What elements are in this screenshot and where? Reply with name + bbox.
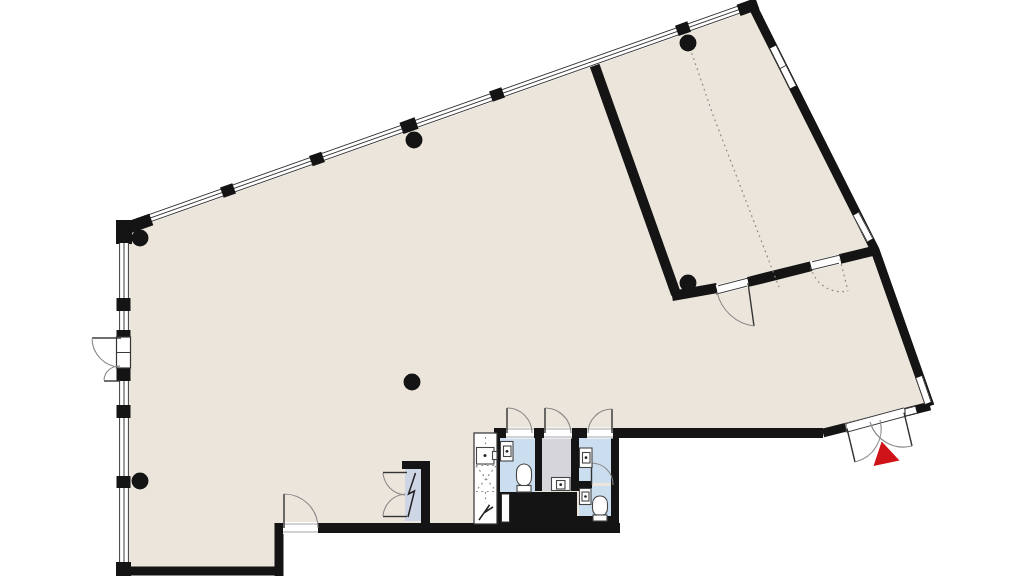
washbasin-symbol	[580, 448, 593, 468]
column	[404, 374, 421, 391]
wall-stall-divider-3	[577, 481, 592, 488]
window-mullion	[117, 368, 131, 381]
window-mullion	[117, 405, 131, 418]
shaft-room	[474, 433, 497, 524]
column	[680, 275, 697, 292]
column	[680, 35, 697, 52]
wall-stall-divider-1	[535, 430, 542, 491]
corner-block-sw	[116, 562, 131, 576]
toilet-symbol	[593, 496, 608, 521]
column	[132, 230, 149, 247]
wall-closet-right	[421, 461, 430, 525]
window-mullion	[117, 476, 131, 488]
window-wall-west	[116, 243, 131, 576]
washbasin-symbol	[501, 442, 514, 462]
washbasin-symbol	[580, 489, 592, 505]
column	[132, 473, 149, 490]
floor-plan-canvas	[0, 0, 1024, 576]
window-mullion	[117, 298, 131, 311]
core-niche	[502, 494, 510, 522]
washbasin-symbol	[552, 478, 571, 491]
column	[406, 132, 423, 149]
entrance-door-arc-right	[870, 422, 912, 447]
west-door-arc-upper	[92, 339, 120, 367]
entrance-door-leaf-right	[904, 413, 912, 447]
utility-sink-symbol	[477, 448, 498, 465]
entrance-door-leaf-left	[847, 429, 855, 463]
toilet-symbol	[517, 464, 532, 492]
floor-plan-drawing	[0, 0, 1024, 576]
